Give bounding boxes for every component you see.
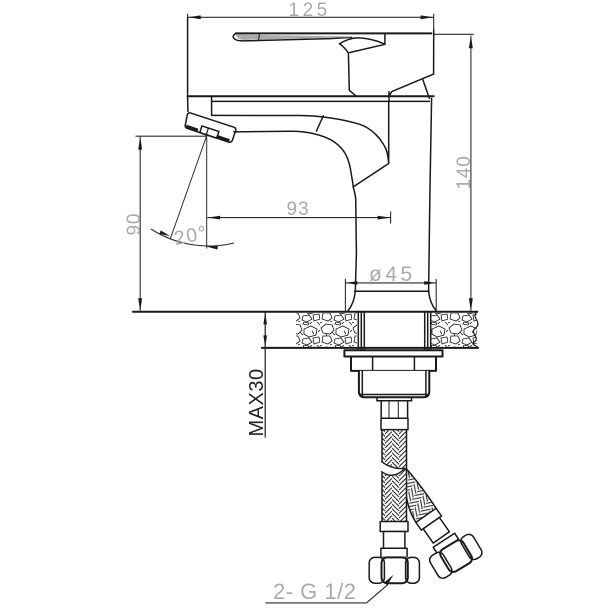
svg-text:140: 140 [454, 155, 475, 189]
svg-text:MAX30: MAX30 [246, 368, 268, 436]
svg-text:125: 125 [289, 0, 331, 21]
svg-text:90: 90 [124, 213, 145, 236]
svg-text:2- G 1/2: 2- G 1/2 [273, 579, 356, 604]
svg-text:93: 93 [287, 199, 310, 220]
svg-text:ø45: ø45 [369, 263, 416, 286]
